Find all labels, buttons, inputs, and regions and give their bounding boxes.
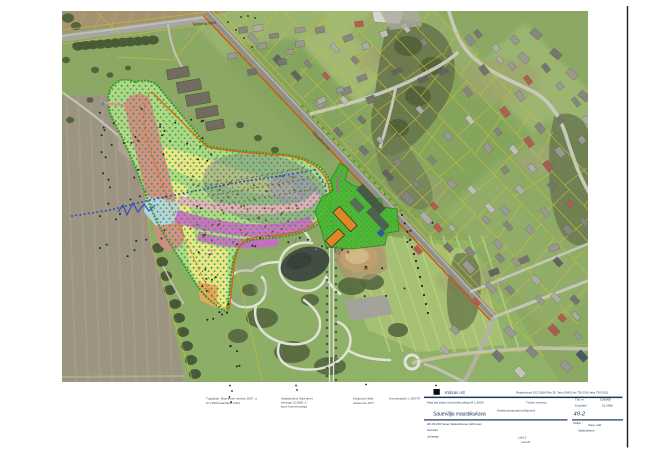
svg-text:Lehti 8: Lehti 8 [521, 440, 530, 444]
svg-text:Koordinaadid: L-EST97: Koordinaadid: L-EST97 [389, 397, 421, 401]
svg-text:10.2008: 10.2008 [602, 403, 613, 407]
svg-text:EP-09-002 Saue Vallavalitsuse: EP-09-002 Saue Vallavalitsuse tellimusel [427, 422, 482, 426]
svg-text:Töö nr: Töö nr [575, 398, 584, 402]
svg-text:49-2: 49-2 [574, 412, 586, 418]
svg-text:koos hoonestusega: koos hoonestusega [281, 405, 307, 409]
svg-text:Tugiplaan: Maa-ameti ortofoto: Tugiplaan: Maa-ameti ortofoto 2007. a [206, 397, 257, 401]
svg-text:Juhataja: Juhataja [427, 435, 439, 439]
svg-text:Tellija:: Tellija: [573, 421, 582, 425]
svg-text:Kobras AS: Kobras AS [445, 390, 465, 395]
svg-text:Kõrgused: Balti: Kõrgused: Balti [353, 397, 374, 401]
svg-text:Maa-ala plaan tehnovõrkudega: Maa-ala plaan tehnovõrkudega M 1:2000 [427, 400, 484, 404]
svg-text:Leht 2: Leht 2 [518, 436, 527, 440]
svg-text:Keskkonnaprojekt põhijoonis: Keskkonnaprojekt põhijoonis [497, 409, 536, 413]
svg-text:Sauevälja maastikukava: Sauevälja maastikukava [433, 412, 486, 418]
svg-text:Saue vald: Saue vald [588, 423, 602, 427]
svg-text:Kuupäev: Kuupäev [575, 403, 587, 407]
svg-text:Registrikood 10171636 Riia 35: Registrikood 10171636 Riia 35, Tartu 504… [516, 391, 608, 395]
svg-text:süsteemis 1977: süsteemis 1977 [353, 401, 374, 405]
svg-text:M 1:2000 kaardileht 6444: M 1:2000 kaardileht 6444 [206, 401, 240, 405]
svg-text:Tööde nimetus: Tööde nimetus [526, 400, 547, 404]
svg-text:1090/08: 1090/08 [600, 398, 611, 402]
svg-text:Koostas: Koostas [427, 428, 438, 432]
svg-text:Vallavalitsus: Vallavalitsus [578, 429, 595, 433]
